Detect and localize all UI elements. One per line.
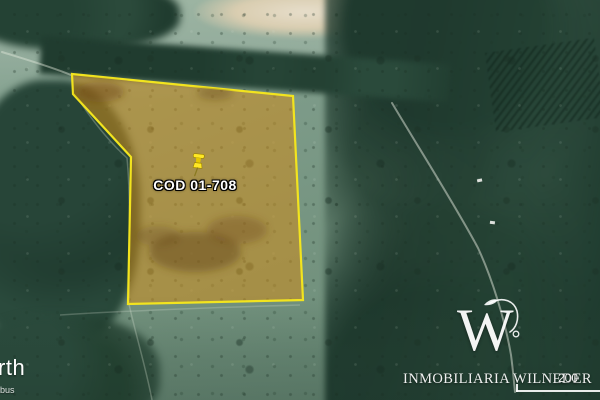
imagery-credit-partial: bus (0, 385, 15, 395)
scale-bar (516, 390, 600, 392)
scale-bar-tick (516, 384, 518, 392)
earth-logo-partial: rth (0, 355, 25, 381)
satellite-map-view[interactable]: COD 01-708 W INMOBILIARIA WILNEDER 200 r… (0, 0, 600, 400)
logo-letter: W (457, 297, 514, 363)
scale-value: 200 (558, 371, 578, 385)
